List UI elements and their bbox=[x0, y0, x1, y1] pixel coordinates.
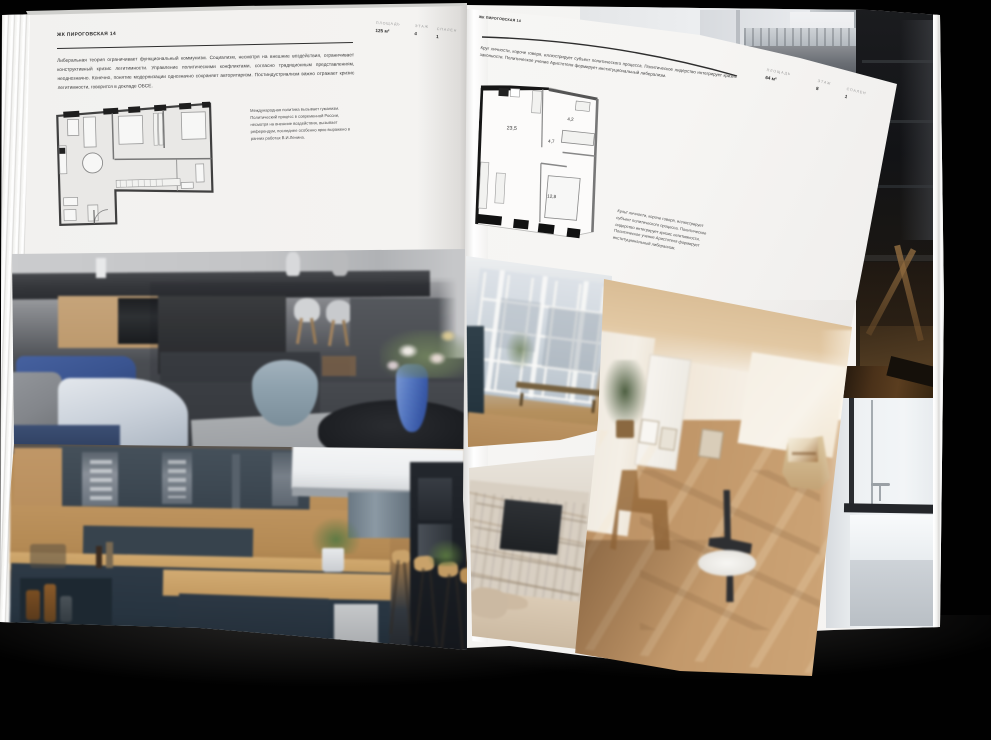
svg-text:23,5: 23,5 bbox=[507, 125, 518, 132]
svg-text:4,2: 4,2 bbox=[567, 117, 574, 122]
svg-text:12,8: 12,8 bbox=[547, 194, 557, 199]
svg-text:4,7: 4,7 bbox=[548, 139, 555, 144]
